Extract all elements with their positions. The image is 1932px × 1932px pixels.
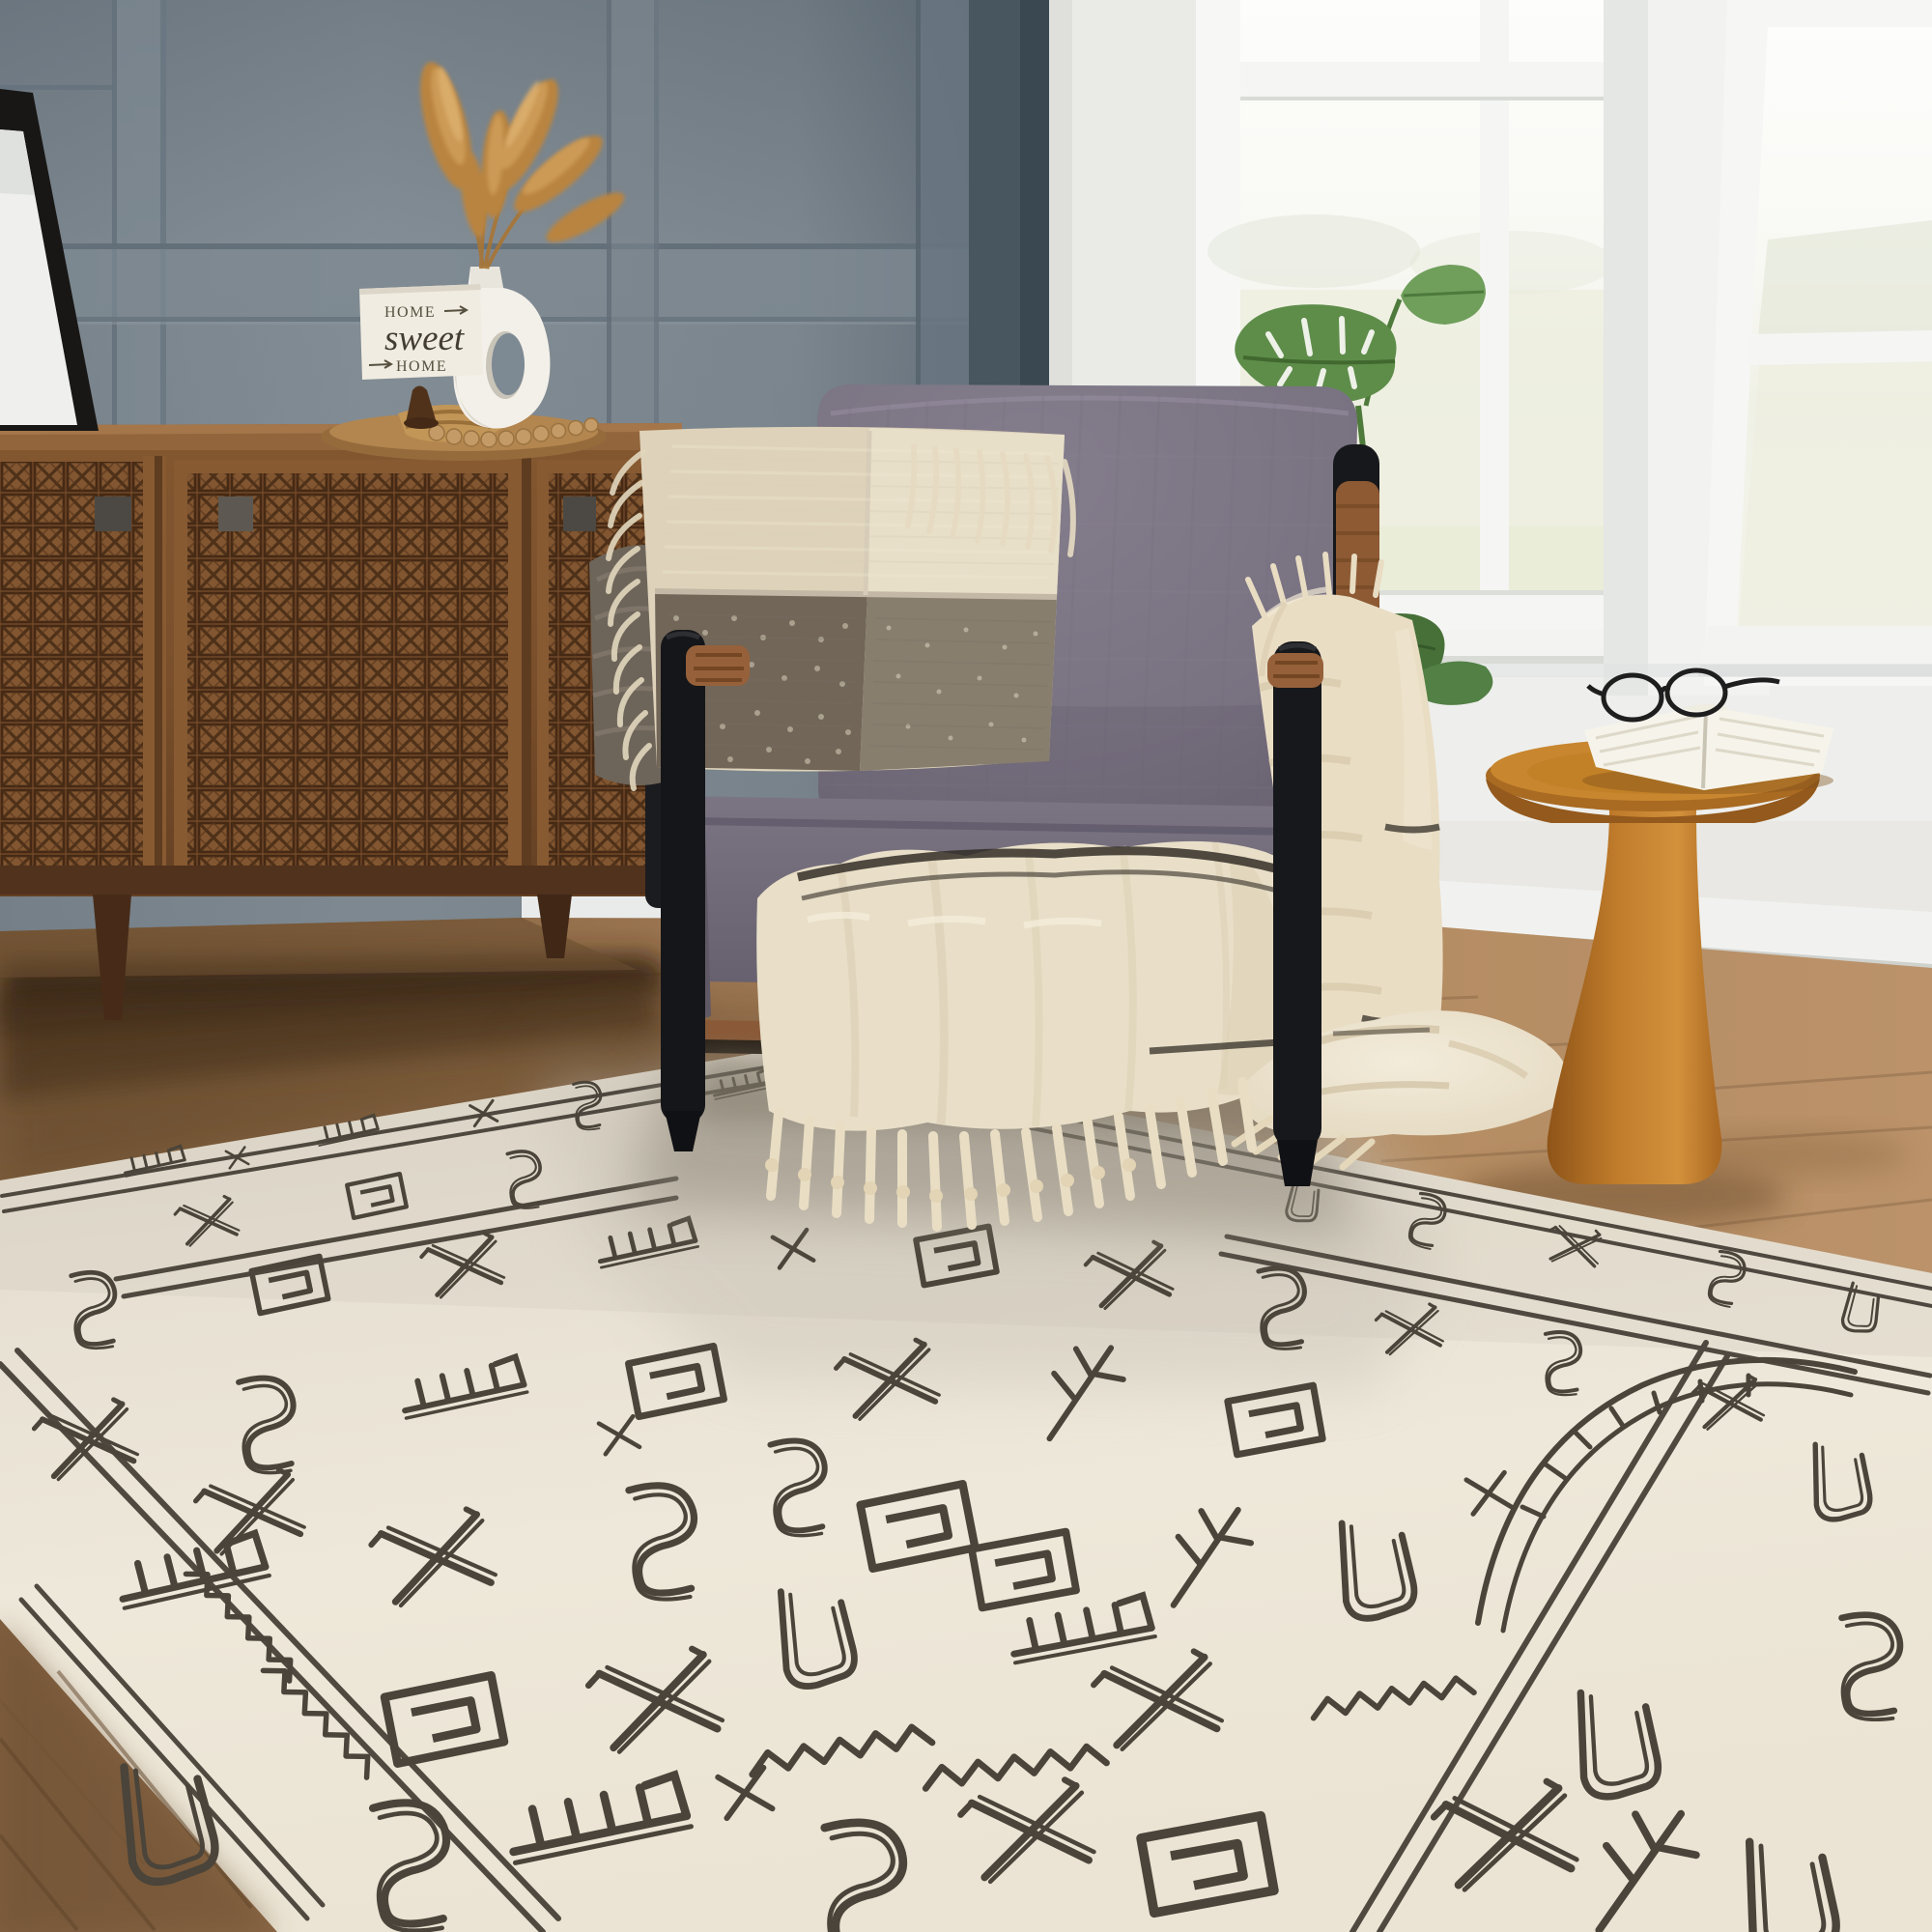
svg-text:HOME: HOME [396, 358, 447, 375]
svg-text:sweet: sweet [384, 319, 466, 358]
